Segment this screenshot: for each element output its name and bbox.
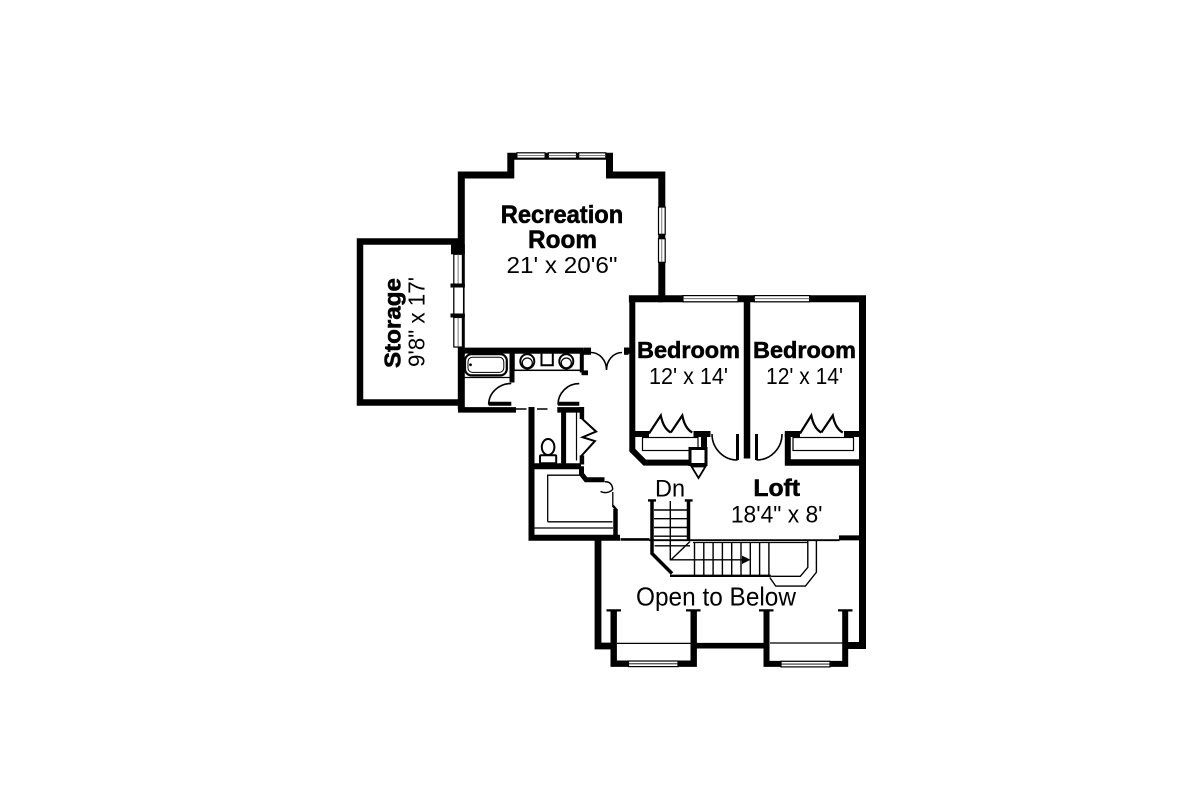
svg-text:21' x 20'6": 21' x 20'6" xyxy=(507,252,618,278)
svg-text:Storage: Storage xyxy=(380,278,406,368)
svg-text:Dn: Dn xyxy=(655,476,685,503)
svg-text:12' x 14': 12' x 14' xyxy=(649,363,728,389)
svg-text:12' x 14': 12' x 14' xyxy=(766,363,843,389)
svg-text:9'8" x 17': 9'8" x 17' xyxy=(404,277,430,367)
svg-text:18'4" x 8': 18'4" x 8' xyxy=(731,502,823,529)
svg-text:Loft: Loft xyxy=(753,475,800,502)
svg-text:Open to Below: Open to Below xyxy=(636,581,796,611)
svg-text:Bedroom: Bedroom xyxy=(753,337,856,363)
svg-text:Bedroom: Bedroom xyxy=(637,337,740,363)
svg-text:Recreation: Recreation xyxy=(501,201,624,229)
svg-text:Room: Room xyxy=(528,226,597,254)
